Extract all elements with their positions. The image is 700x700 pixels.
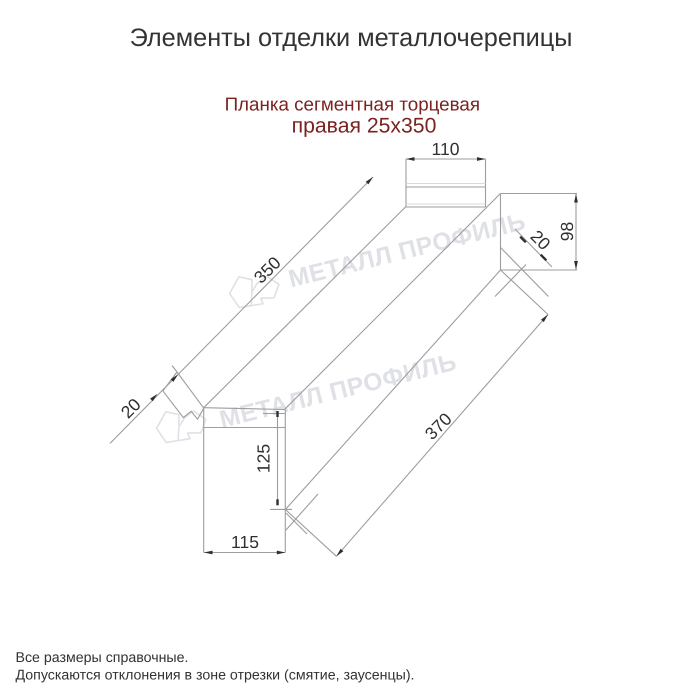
svg-text:125: 125 [254, 444, 274, 473]
svg-text:Планка сегментная торцевая: Планка сегментная торцевая [225, 94, 480, 115]
svg-text:110: 110 [432, 139, 460, 159]
svg-text:Все размеры справочные.: Все размеры справочные. [16, 650, 189, 666]
svg-text:Элементы отделки металлочерепи: Элементы отделки металлочерепицы [130, 24, 573, 52]
svg-text:98: 98 [557, 222, 577, 241]
svg-text:115: 115 [231, 532, 259, 552]
svg-text:правая 25х350: правая 25х350 [292, 115, 437, 138]
svg-text:Допускаются отклонения в зоне: Допускаются отклонения в зоне отрезки (с… [16, 668, 415, 684]
